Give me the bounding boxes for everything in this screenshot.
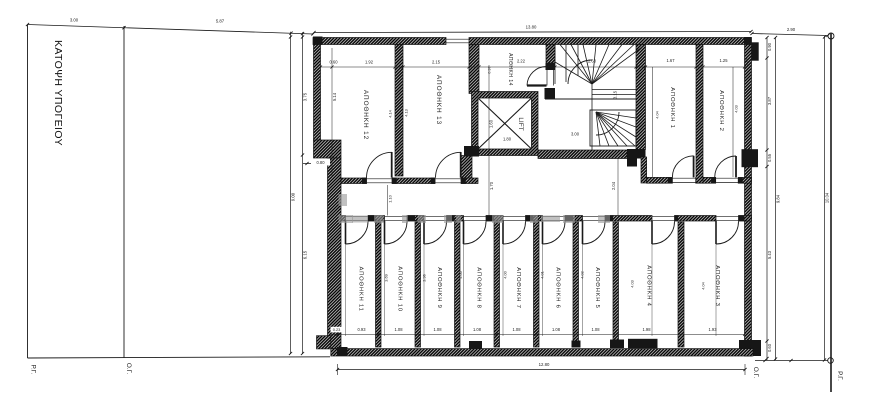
svg-text:9.00: 9.00 <box>291 192 296 201</box>
svg-text:1.08: 1.08 <box>552 327 561 332</box>
svg-text:4.00: 4.00 <box>458 270 463 278</box>
svg-text:0.93: 0.93 <box>358 327 367 332</box>
svg-text:1.25: 1.25 <box>720 58 729 63</box>
svg-text:1.08: 1.08 <box>473 327 482 332</box>
svg-text:ΑΠΟΘΗΚΗ 10: ΑΠΟΘΗΚΗ 10 <box>397 266 403 311</box>
svg-text:1.08: 1.08 <box>434 327 443 332</box>
svg-text:Ο.Γ.: Ο.Γ. <box>752 367 759 378</box>
svg-text:Ρ.Γ.: Ρ.Γ. <box>836 371 843 381</box>
svg-text:ΑΠΘΗΚΗ 14: ΑΠΘΗΚΗ 14 <box>507 53 513 86</box>
svg-text:3.15: 3.15 <box>613 90 618 99</box>
svg-text:4.02: 4.02 <box>580 271 585 279</box>
svg-text:13.80: 13.80 <box>526 25 537 30</box>
svg-text:1.08: 1.08 <box>395 327 404 332</box>
svg-text:6.15: 6.15 <box>303 250 308 259</box>
svg-text:5.87: 5.87 <box>216 19 225 24</box>
svg-text:2.60: 2.60 <box>588 59 597 64</box>
svg-text:1.80: 1.80 <box>503 137 512 142</box>
svg-text:3.87: 3.87 <box>767 96 772 105</box>
svg-text:ΑΠΟΘΗΚΗ 3: ΑΠΟΘΗΚΗ 3 <box>714 265 720 306</box>
svg-text:ΑΠΟΘΗΚΗ 2: ΑΠΟΘΗΚΗ 2 <box>718 90 724 131</box>
svg-text:0.80: 0.80 <box>317 160 326 165</box>
svg-text:ΑΠΟΘΗΚΗ 5: ΑΠΟΘΗΚΗ 5 <box>594 267 600 308</box>
svg-text:2.04: 2.04 <box>611 181 616 190</box>
svg-text:10.04: 10.04 <box>824 192 829 203</box>
svg-text:1.92: 1.92 <box>365 60 374 65</box>
svg-text:4.04: 4.04 <box>655 110 660 118</box>
svg-text:ΑΠΟΘΗΚΗ 6: ΑΠΟΘΗΚΗ 6 <box>555 267 561 308</box>
svg-text:ΑΠΟΘΗΚΗ 1: ΑΠΟΘΗΚΗ 1 <box>669 87 675 128</box>
svg-text:ΚΑΤΟΨΗ ΥΠΟΓΕΙΟΥ: ΚΑΤΟΨΗ ΥΠΟΓΕΙΟΥ <box>52 40 64 146</box>
svg-text:ΑΠΟΘΗΚΗ 8: ΑΠΟΘΗΚΗ 8 <box>476 267 482 308</box>
svg-text:4.03: 4.03 <box>630 280 635 288</box>
svg-text:ΑΠΟΘΗΚΗ 7: ΑΠΟΘΗΚΗ 7 <box>515 267 521 308</box>
svg-text:0.23: 0.23 <box>333 327 341 332</box>
svg-text:4.00: 4.00 <box>503 270 508 278</box>
svg-text:Ο.Γ.: Ο.Γ. <box>125 363 132 374</box>
svg-text:3.00: 3.00 <box>571 132 580 137</box>
svg-text:ΑΠΟΘΗΚΗ 13: ΑΠΟΘΗΚΗ 13 <box>435 75 442 125</box>
svg-text:3.96: 3.96 <box>422 274 427 282</box>
svg-text:4.01: 4.01 <box>540 271 545 279</box>
svg-text:1.08: 1.08 <box>592 327 601 332</box>
svg-text:2.22: 2.22 <box>517 59 526 64</box>
svg-text:5.43: 5.43 <box>767 250 772 259</box>
svg-text:ΑΠΟΘΗΚΗ 4: ΑΠΟΘΗΚΗ 4 <box>646 265 652 306</box>
svg-text:1.93: 1.93 <box>709 327 718 332</box>
svg-text:LIFT: LIFT <box>517 117 524 130</box>
svg-text:0.90: 0.90 <box>767 42 772 51</box>
svg-text:1.98: 1.98 <box>643 327 652 332</box>
svg-text:1.08: 1.08 <box>513 327 522 332</box>
svg-text:1.67: 1.67 <box>667 58 676 63</box>
svg-text:5.14: 5.14 <box>332 92 337 101</box>
svg-text:3.69: 3.69 <box>383 274 388 282</box>
svg-text:0.55: 0.55 <box>767 153 772 162</box>
svg-text:ΑΠΟΘΗΚΗ 9: ΑΠΟΘΗΚΗ 9 <box>436 267 442 308</box>
svg-text:0.97: 0.97 <box>488 66 492 73</box>
svg-text:3.00: 3.00 <box>70 18 79 23</box>
svg-text:0.60: 0.60 <box>330 60 339 65</box>
svg-text:ΑΠΟΘΗΚΗ 11: ΑΠΟΘΗΚΗ 11 <box>358 266 364 311</box>
svg-text:4.13: 4.13 <box>404 109 409 117</box>
svg-text:9.84: 9.84 <box>776 194 781 203</box>
svg-text:3.75: 3.75 <box>303 92 308 101</box>
svg-text:4.03: 4.03 <box>734 105 739 113</box>
svg-text:2.90: 2.90 <box>787 27 796 32</box>
svg-text:Ρ.Γ.: Ρ.Γ. <box>30 365 37 375</box>
svg-text:1.10: 1.10 <box>387 194 392 202</box>
svg-text:0.60: 0.60 <box>767 343 772 352</box>
svg-text:ΑΠΟΘΗΚΗ 12: ΑΠΟΘΗΚΗ 12 <box>362 90 369 140</box>
svg-text:4.14: 4.14 <box>388 109 393 117</box>
svg-text:1.70: 1.70 <box>489 181 494 190</box>
svg-text:1.28: 1.28 <box>745 58 749 65</box>
svg-text:4.04: 4.04 <box>701 281 706 289</box>
svg-text:2.15: 2.15 <box>432 60 441 65</box>
svg-text:12.80: 12.80 <box>539 362 550 367</box>
